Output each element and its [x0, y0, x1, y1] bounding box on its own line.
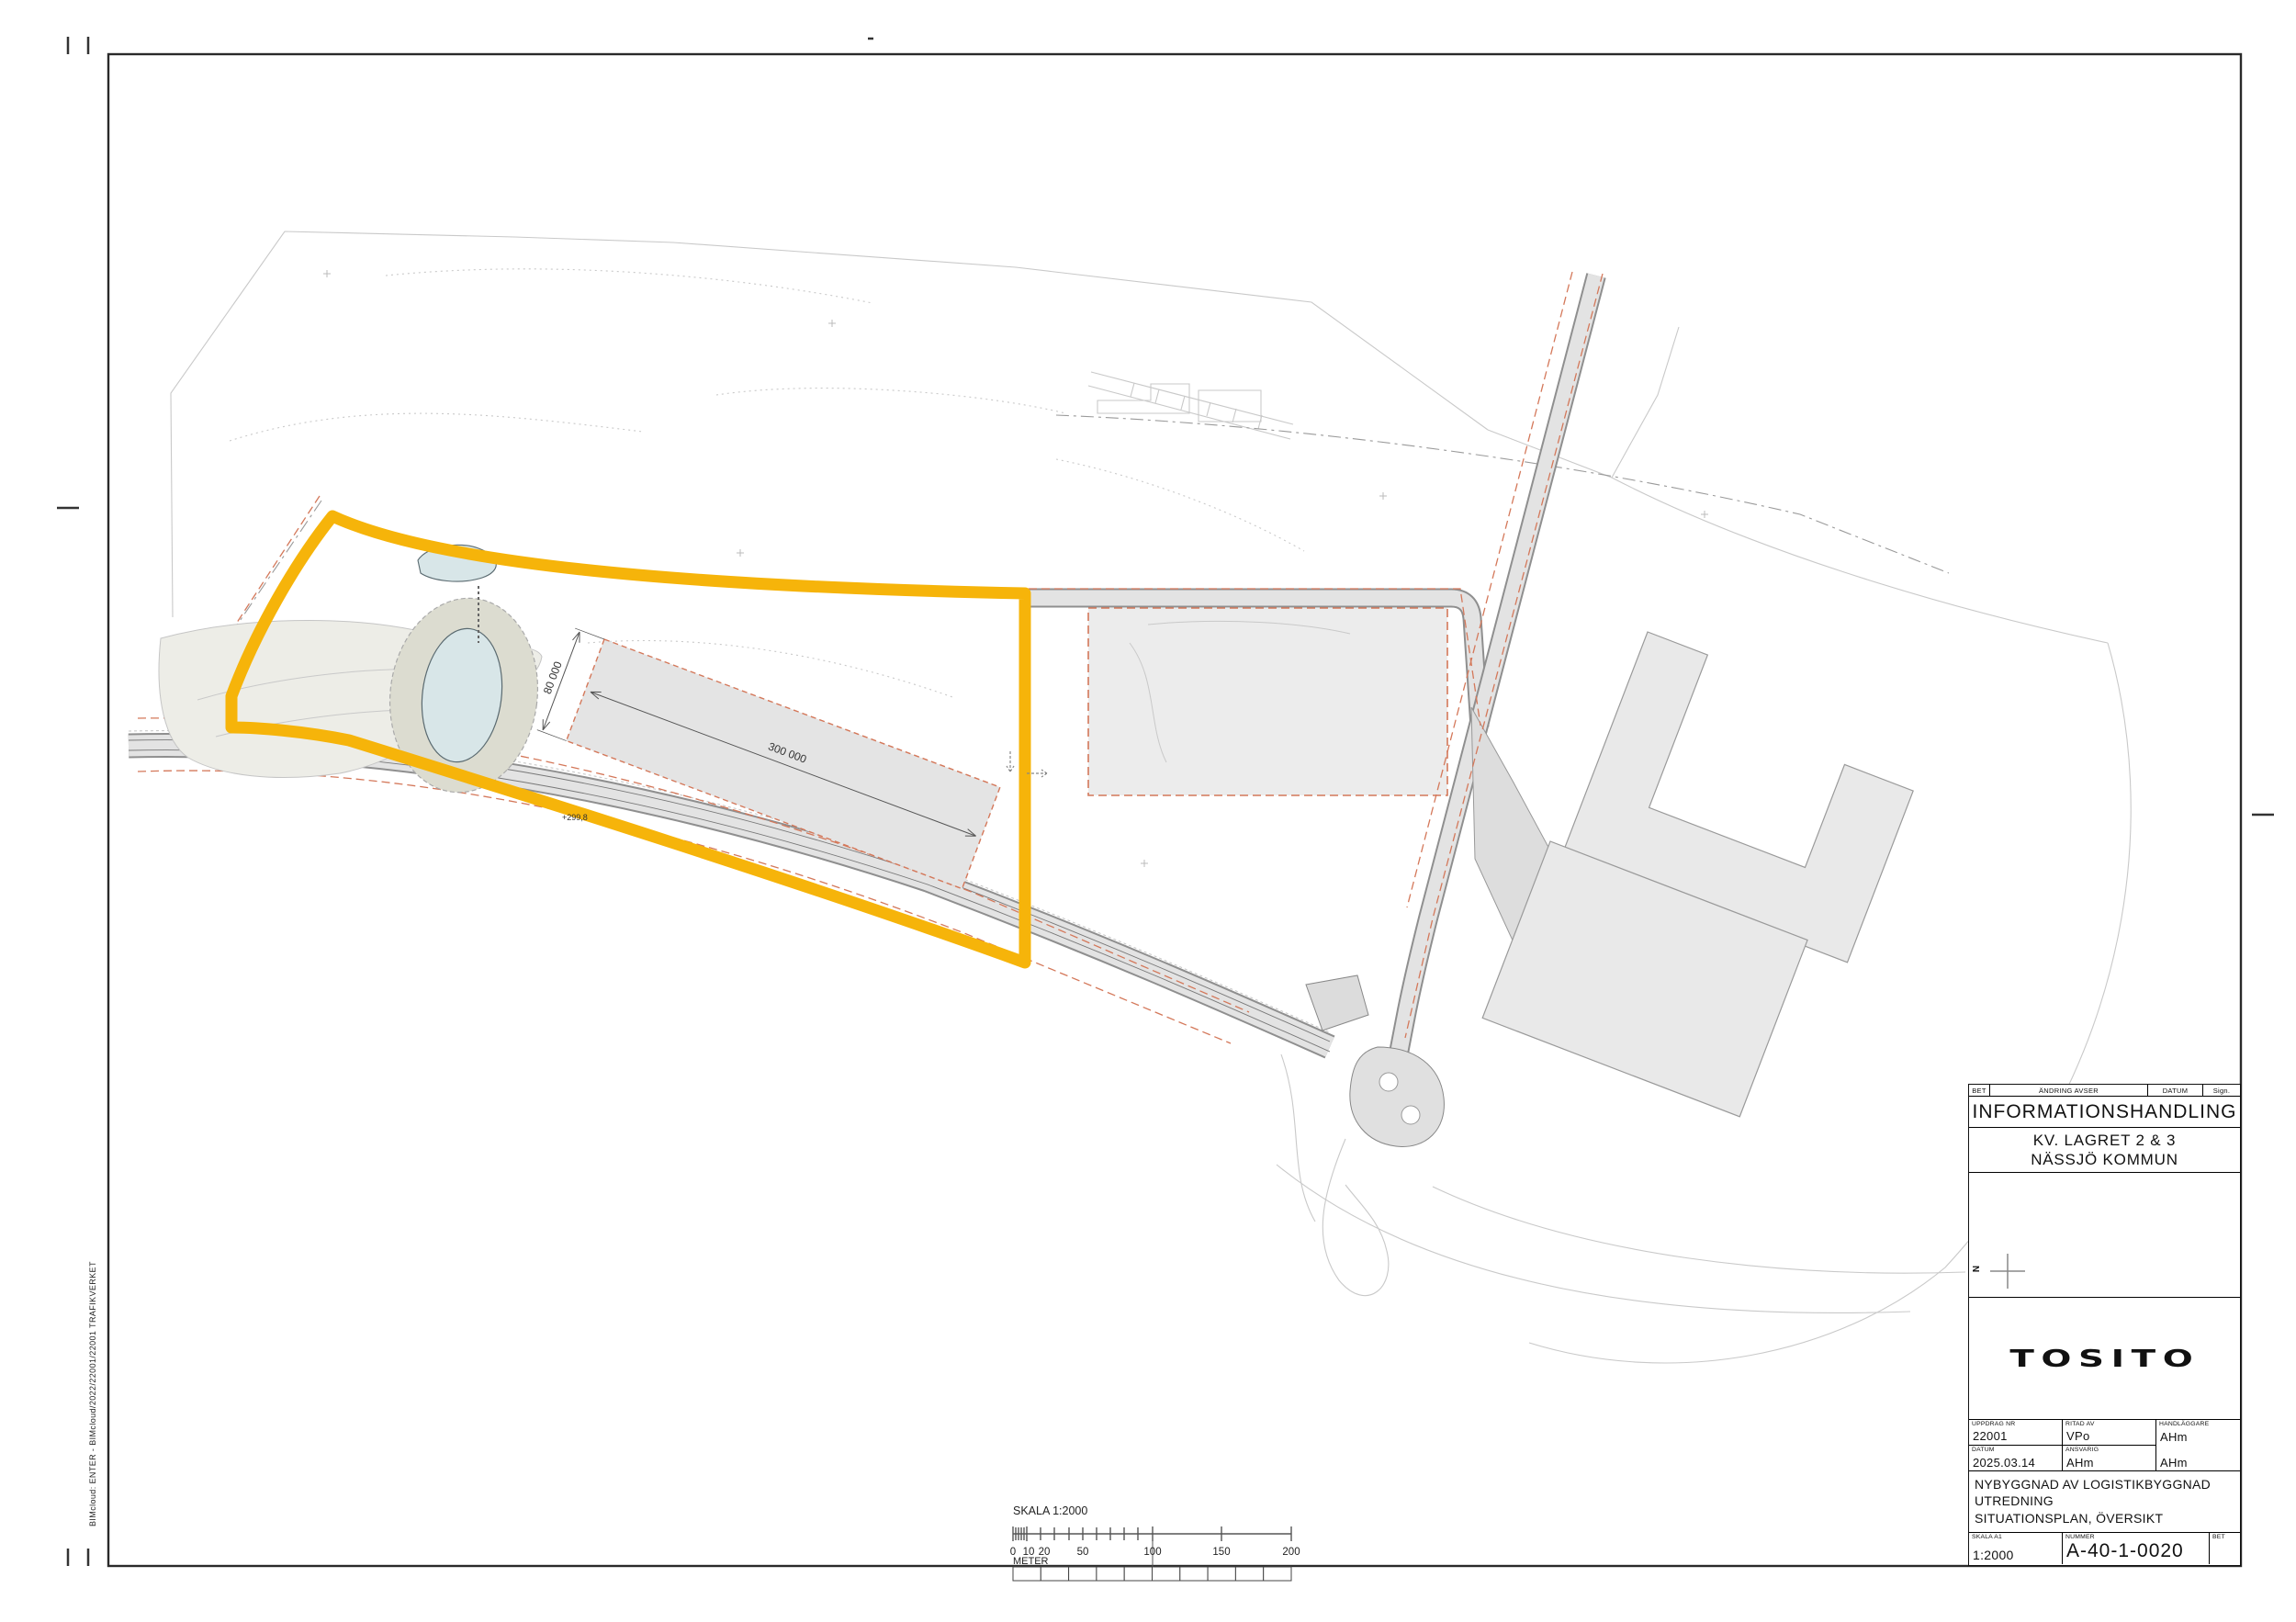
description-line: SITUATIONSPLAN, ÖVERSIKT	[1975, 1510, 2234, 1526]
rev-change-header: ÄNDRING AVSER	[1990, 1085, 2148, 1096]
orientation-box: N	[1969, 1173, 2240, 1298]
field-uppdrag-nr: UPPDRAG NR 22001	[1969, 1420, 2063, 1446]
scale-tick-label: 150	[1212, 1547, 1230, 1558]
field-label: SKALA A1	[1972, 1534, 2002, 1540]
field-handlaggare-2: AHm	[2156, 1446, 2239, 1471]
document-type: INFORMATIONSHANDLING	[1969, 1097, 2240, 1128]
elevation-label: +299,8	[562, 813, 588, 822]
road-junction	[1350, 1047, 1445, 1146]
scale-bar-title: SKALA 1:2000	[1013, 1504, 1087, 1517]
field-label: RITAD AV	[2065, 1421, 2095, 1427]
project-line2: NÄSSJÖ KOMMUN	[2031, 1150, 2178, 1169]
number-row: SKALA A1 1:2000 NUMMER A-40-1-0020 BET	[1969, 1533, 2240, 1564]
field-value: A-40-1-0020	[2066, 1540, 2184, 1562]
field-value: AHm	[2160, 1456, 2188, 1470]
planned-area	[1088, 608, 1447, 795]
company-logo-box: TOSITO	[1969, 1298, 2240, 1420]
field-label: HANDLÄGGARE	[2159, 1421, 2209, 1427]
field-label: DATUM	[1972, 1447, 1995, 1453]
field-skala: SKALA A1 1:2000	[1969, 1533, 2063, 1564]
terrain-lines	[129, 231, 2131, 1363]
dimension-width: 80 000	[541, 659, 565, 696]
field-label: BET	[2212, 1534, 2225, 1540]
field-value: 22001	[1973, 1429, 2008, 1443]
fold-ruler	[1013, 1567, 1291, 1581]
field-ansvarig: ANSVARIG AHm	[2063, 1446, 2156, 1471]
field-label: ANSVARIG	[2065, 1447, 2099, 1453]
title-block: BET ÄNDRING AVSER DATUM Sign. INFORMATIO…	[1968, 1084, 2241, 1566]
field-value: 2025.03.14	[1973, 1456, 2035, 1470]
proposed-building: 300 000 80 000	[528, 625, 1000, 888]
field-value: AHm	[2160, 1430, 2188, 1444]
field-label: UPPDRAG NR	[1972, 1421, 2015, 1427]
scale-tick-label: 100	[1143, 1547, 1161, 1558]
field-handlaggare: HANDLÄGGARE AHm	[2156, 1420, 2239, 1446]
site-plan-canvas: 300 000 80 000 +299,8 SKALA 1:2000	[0, 0, 2296, 1622]
drawing-frame	[108, 54, 2241, 1566]
scale-tick-label: 50	[1077, 1547, 1089, 1558]
drawing-description: NYBYGGNAD AV LOGISTIKBYGGNAD UTREDNING S…	[1969, 1471, 2240, 1533]
fold-marks	[57, 37, 2274, 1566]
description-line: NYBYGGNAD AV LOGISTIKBYGGNAD	[1975, 1476, 2234, 1492]
description-line: UTREDNING	[1975, 1492, 2234, 1509]
revision-header-row: BET ÄNDRING AVSER DATUM Sign.	[1969, 1085, 2240, 1097]
field-value: AHm	[2066, 1456, 2094, 1470]
rev-sign-header: Sign.	[2203, 1085, 2240, 1096]
drawing-sheet: 300 000 80 000 +299,8 SKALA 1:2000	[0, 0, 2296, 1622]
project-name: KV. LAGRET 2 & 3 NÄSSJÖ KOMMUN	[1969, 1128, 2240, 1173]
rev-date-header: DATUM	[2148, 1085, 2203, 1096]
file-path-note: BIMcloud: ENTER - BIMcloud/2022/22001/22…	[88, 1306, 101, 1526]
field-datum: DATUM 2025.03.14	[1969, 1446, 2063, 1471]
field-bet: BET	[2210, 1533, 2239, 1564]
scale-bar-unit: METER	[1013, 1556, 1049, 1567]
north-label: N	[1972, 1266, 1982, 1272]
field-nummer: NUMMER A-40-1-0020	[2063, 1533, 2210, 1564]
fields-grid: UPPDRAG NR 22001 RITAD AV VPo HANDLÄGGAR…	[1969, 1420, 2240, 1471]
tosito-logo: TOSITO	[2009, 1345, 2200, 1372]
scale-tick-label: 200	[1282, 1547, 1300, 1558]
field-value: 1:2000	[1973, 1548, 2014, 1562]
field-value: VPo	[2066, 1429, 2089, 1443]
rev-bet-header: BET	[1969, 1085, 1990, 1096]
scale-bar: SKALA 1:2000 0 10 20 50 100 150 200 METE…	[1010, 1504, 1300, 1567]
field-ritad-av: RITAD AV VPo	[2063, 1420, 2156, 1446]
road-patch	[1306, 975, 1368, 1031]
project-line1: KV. LAGRET 2 & 3	[2031, 1131, 2178, 1150]
